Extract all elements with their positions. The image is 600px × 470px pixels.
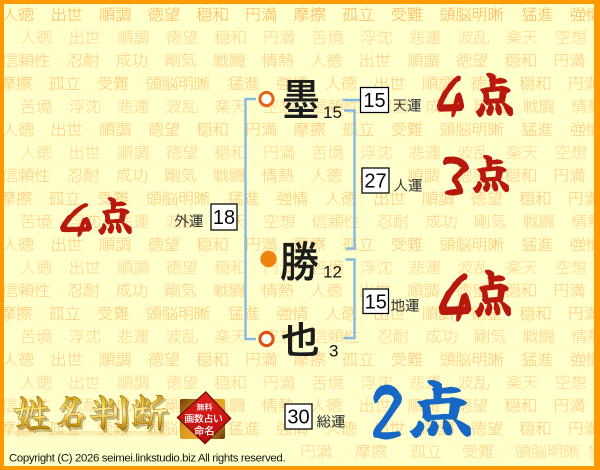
svg-text:3: 3 bbox=[329, 342, 338, 361]
svg-text:15: 15 bbox=[365, 291, 387, 313]
svg-text:15: 15 bbox=[323, 103, 342, 122]
svg-text:18: 18 bbox=[213, 207, 235, 229]
svg-text:Copyright (C) 2026 seimei.link: Copyright (C) 2026 seimei.linkstudio.biz… bbox=[9, 453, 285, 465]
svg-text:30: 30 bbox=[287, 407, 309, 429]
svg-text:15: 15 bbox=[363, 90, 385, 112]
svg-text:12: 12 bbox=[323, 263, 342, 282]
svg-text:27: 27 bbox=[364, 171, 386, 193]
